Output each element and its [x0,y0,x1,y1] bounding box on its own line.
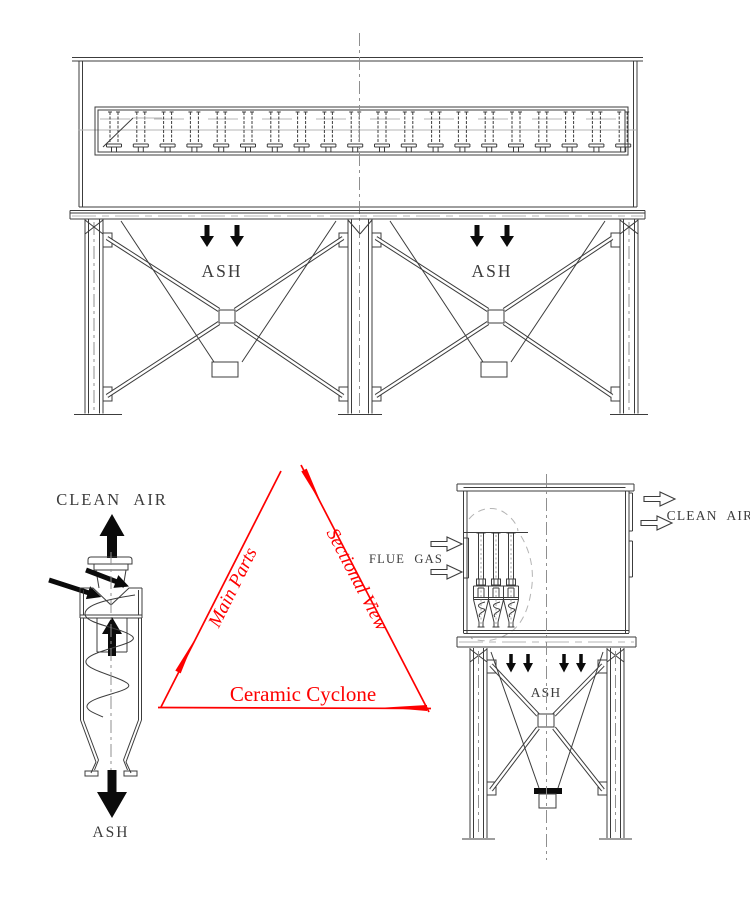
ash-label-left: ASH [201,261,242,281]
bay-left: ASH [103,221,348,401]
column-left [74,219,122,415]
collector-housing [72,58,643,208]
front-elevation-view: ASH ASH [70,33,648,415]
cycle-triangle: Main Parts Sectional View Ceramic Cyclon… [158,465,431,712]
hopper-left [121,221,336,377]
sectional-view-label: Sectional View [322,525,393,634]
clean-air-outlet: CLEAN AIR [641,492,750,530]
clean-air-arrow-icon [644,492,675,506]
clean-air-label: CLEAN AIR [667,508,750,523]
ash-label-right: ASH [471,261,512,281]
section-column-left [462,648,495,839]
section-column-right [599,648,632,839]
main-parts-label: Main Parts [204,544,262,631]
clean-air-arrow-icon [100,514,125,558]
flue-gas-inlet: FLUE GAS [369,537,462,579]
bay-right: ASH [372,221,620,401]
support-structure: ASH ASH [74,219,648,415]
internal-cyclone-elements [469,508,532,640]
hopper-outlet-valve [534,788,562,794]
arrow-flag-right-edge [301,469,322,505]
clean-air-label: CLEAN AIR [56,490,168,509]
arrow-flag-left-edge [175,641,194,674]
ash-flow-arrows-right [470,225,514,247]
ash-flow-arrows-left [200,225,244,247]
flue-gas-arrow-icon [431,537,462,551]
cyclone-detail-view: CLEAN AIR ASH [47,490,168,841]
flue-gas-label: FLUE GAS [369,552,443,566]
hopper-right [390,221,605,377]
arrow-flag-bottom-edge [385,705,427,711]
sectional-view: FLUE GAS CLEAN AIR [369,474,750,860]
outlet-duct-flange [629,493,633,577]
flue-gas-arrow-icon [431,565,462,579]
ceramic-cyclone-label: Ceramic Cyclone [230,682,376,706]
ash-arrow-icon [97,770,127,818]
inlet-duct-flange [464,538,469,578]
platform-band [70,211,645,220]
cyclone-tube-row [78,107,636,155]
ash-label: ASH [92,824,129,841]
column-right [610,219,648,415]
drawing-canvas: ASH ASH CLEAN AIR [0,0,750,900]
